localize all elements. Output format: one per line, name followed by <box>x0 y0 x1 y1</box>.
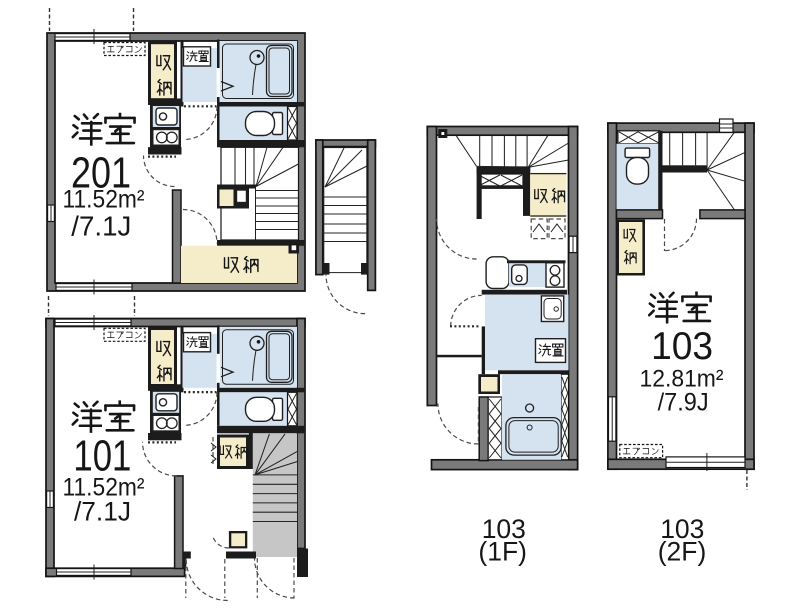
svg-text:/7.9J: /7.9J <box>658 389 709 417</box>
svg-text:/7.1J: /7.1J <box>71 211 131 242</box>
svg-text:/7.1J: /7.1J <box>74 497 131 527</box>
svg-text:103: 103 <box>651 325 713 368</box>
svg-text:(2F): (2F) <box>658 537 707 567</box>
svg-text:(1F): (1F) <box>478 537 527 567</box>
svg-text:11.52m²: 11.52m² <box>63 186 145 214</box>
